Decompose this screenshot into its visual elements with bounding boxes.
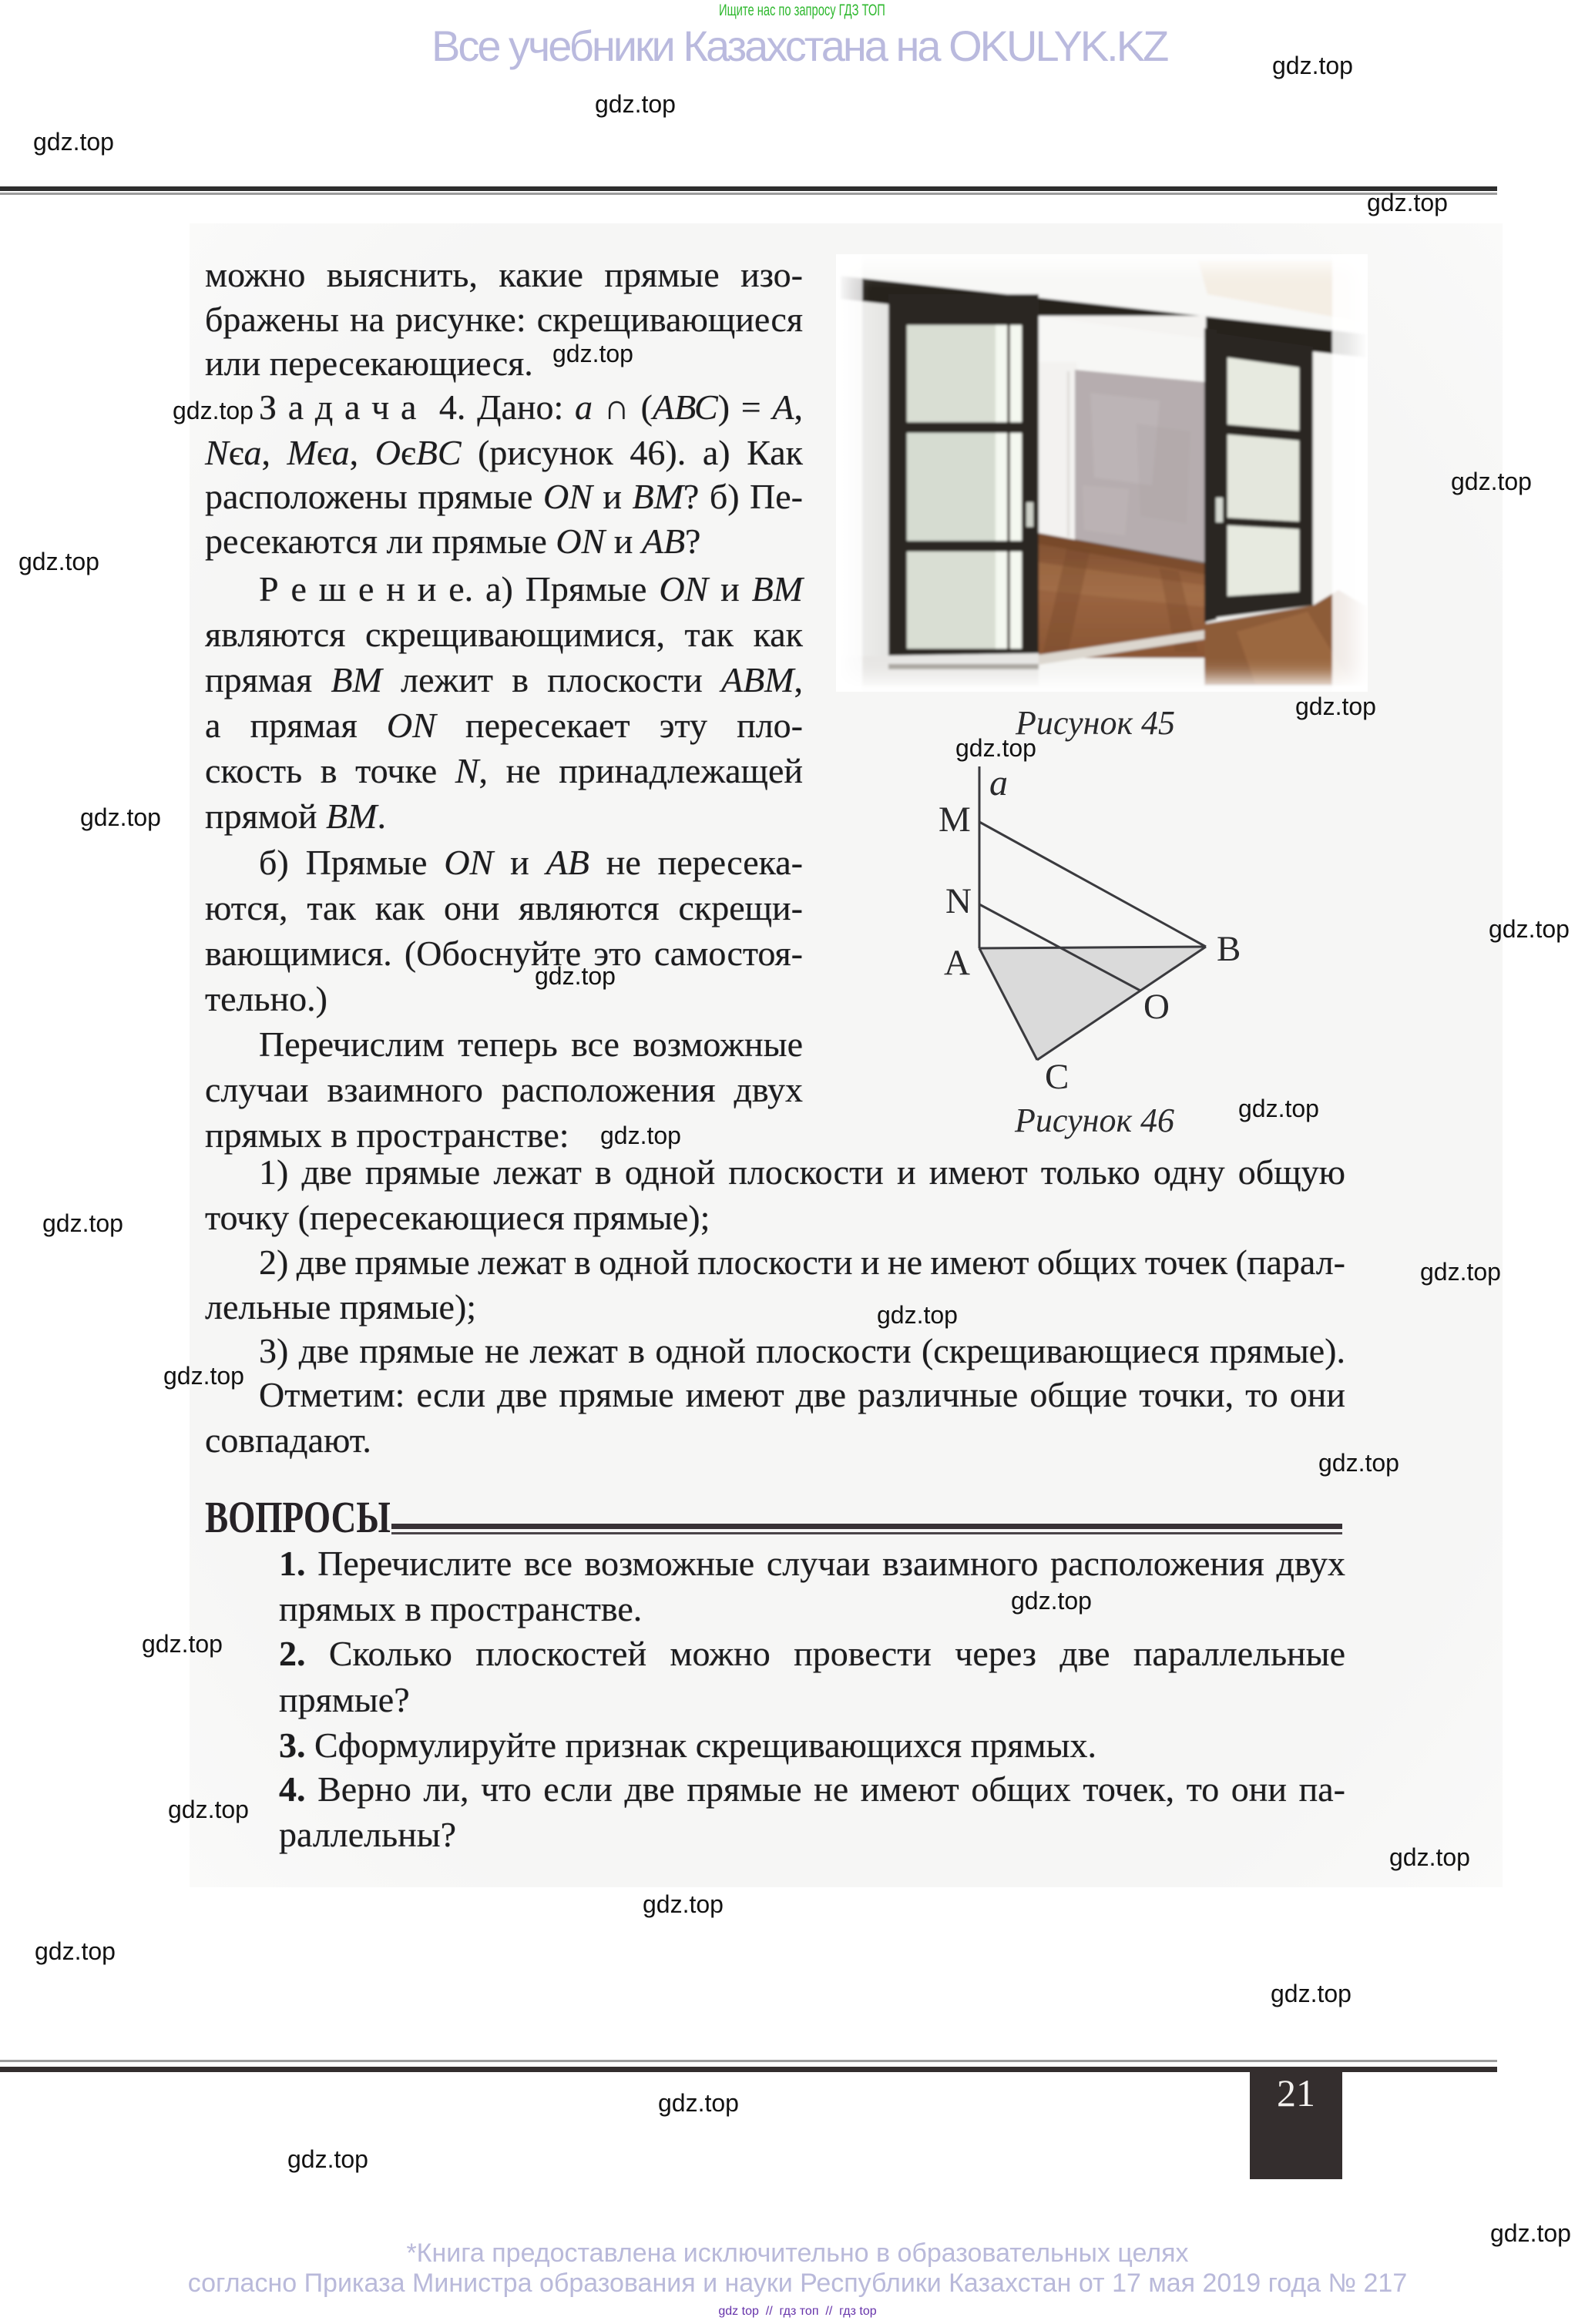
svg-text:B: B bbox=[1217, 929, 1241, 969]
svg-text:C: C bbox=[1045, 1057, 1069, 1097]
svg-text:a: a bbox=[989, 763, 1008, 803]
svg-text:M: M bbox=[939, 800, 971, 840]
svg-text:N: N bbox=[945, 881, 972, 921]
svg-text:O: O bbox=[1143, 987, 1170, 1027]
svg-text:A: A bbox=[944, 943, 970, 983]
